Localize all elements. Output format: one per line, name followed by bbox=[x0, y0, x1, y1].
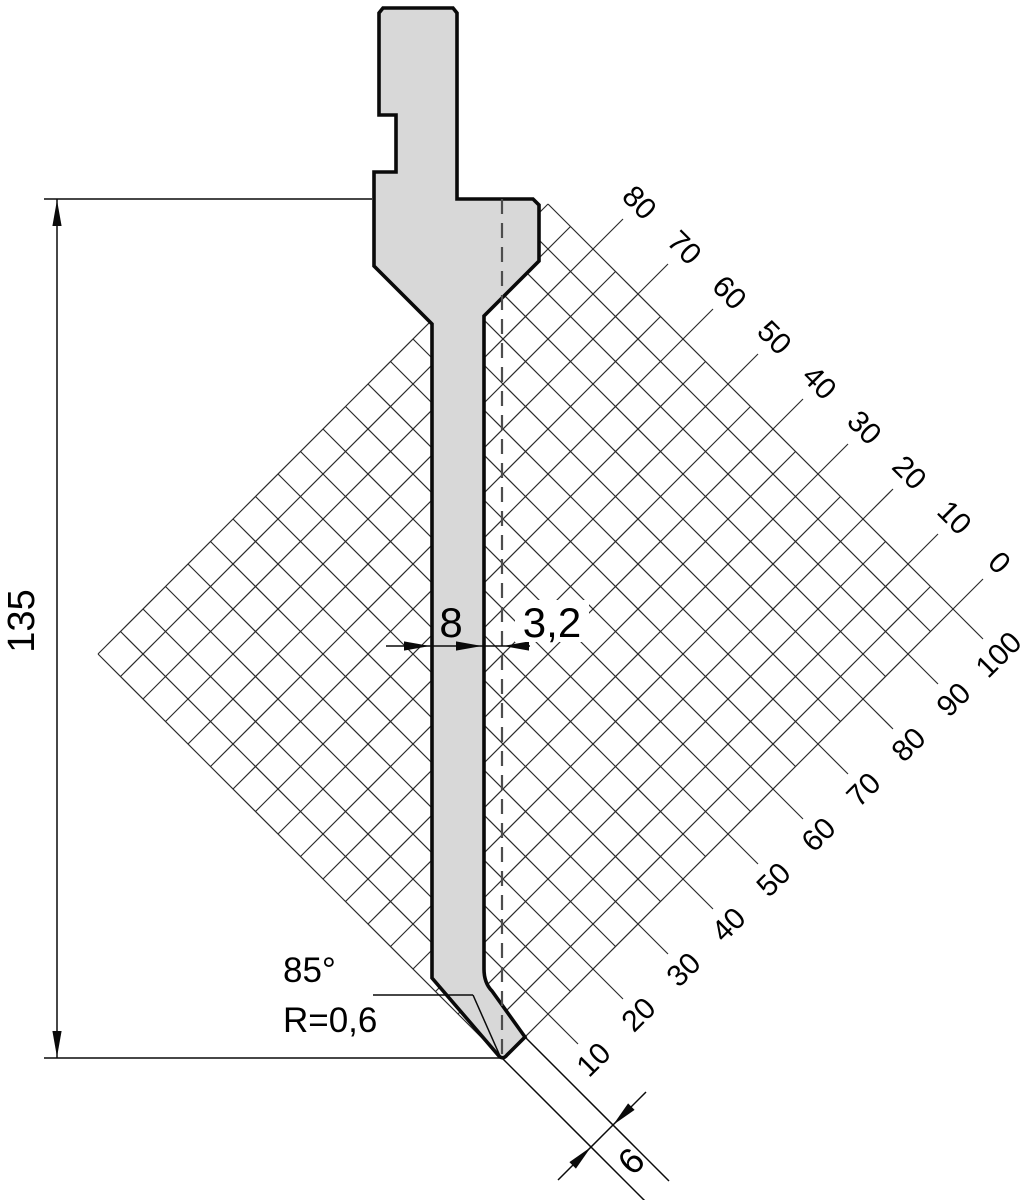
tip-angle-label: 85° bbox=[283, 951, 336, 990]
arrowhead bbox=[52, 200, 61, 226]
dim-height-label: 135 bbox=[1, 589, 43, 652]
scale-tick bbox=[863, 489, 893, 519]
scale-tick bbox=[728, 834, 758, 864]
dim-bottom-width-label: 6 bbox=[609, 1139, 652, 1182]
upper-scale-label: 0 bbox=[981, 545, 1016, 580]
press-brake-punch-drawing: 80706050403020100 102030405060708090100 … bbox=[0, 0, 1031, 1200]
scale-tick bbox=[773, 789, 803, 819]
tip-radius-label: R=0,6 bbox=[283, 1001, 377, 1040]
scale-tick bbox=[638, 924, 668, 954]
scale-tick bbox=[638, 264, 668, 294]
scale-tick bbox=[908, 534, 938, 564]
scale-tick bbox=[863, 699, 893, 729]
scale-tick bbox=[908, 654, 938, 684]
dim-tip-offset-label: 3,2 bbox=[523, 599, 581, 646]
scale-tick bbox=[818, 744, 848, 774]
tip-extension-line bbox=[503, 1059, 647, 1200]
scale-tick bbox=[728, 354, 758, 384]
arrowhead bbox=[52, 1031, 61, 1057]
lower-scale-labels: 102030405060708090100 bbox=[571, 626, 1029, 1084]
scale-tick bbox=[953, 579, 983, 609]
scale-tick bbox=[683, 309, 713, 339]
dimension-lines bbox=[44, 199, 669, 1200]
scale-tick bbox=[593, 969, 623, 999]
scale-tick bbox=[818, 444, 848, 474]
scale-tick bbox=[548, 1014, 578, 1044]
scale-tick bbox=[683, 879, 713, 909]
scale-tick bbox=[953, 609, 983, 639]
drawing-canvas: 80706050403020100 102030405060708090100 … bbox=[0, 0, 1031, 1200]
scale-tick bbox=[773, 399, 803, 429]
scale-tick bbox=[593, 219, 623, 249]
dim-blade-width-label: 8 bbox=[439, 599, 462, 646]
